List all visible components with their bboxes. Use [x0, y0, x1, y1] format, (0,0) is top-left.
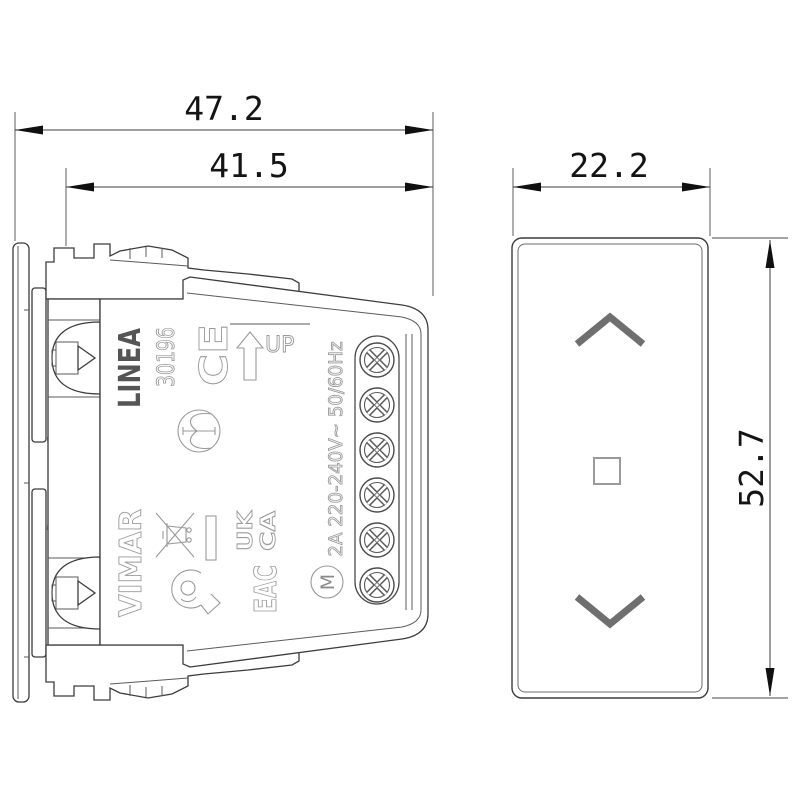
- dimension-value-front-width: 22.2: [569, 146, 648, 185]
- screw-terminal-icon: [360, 433, 394, 467]
- dimension-front-height: 52.7: [712, 238, 788, 698]
- screw-terminal-icon: [360, 478, 394, 512]
- electrical-rating-label: 2A 220-240V~ 50/60Hz: [325, 341, 347, 556]
- insulation-circle-symbol-icon: [178, 410, 220, 452]
- dimension-value-overall-depth: 47.2: [184, 89, 263, 128]
- arrowhead-down-icon: [766, 668, 775, 696]
- rocker-plate-outline: [13, 243, 29, 702]
- eac-mark-label: EAC: [249, 565, 284, 613]
- screw-terminal-icon: [360, 343, 394, 377]
- screw-terminal-icon: [360, 568, 394, 602]
- ukca-mark-label: UKCA: [233, 509, 280, 551]
- separator-bar-icon: [206, 516, 216, 560]
- claw-housing: [48, 299, 100, 645]
- arrowhead-left-icon: [513, 183, 541, 192]
- screw-terminal-icon: [360, 388, 394, 422]
- rocker-plate-profile: [13, 243, 29, 702]
- frame-lower-segment: [32, 489, 46, 657]
- arrowhead-left-icon: [15, 126, 43, 135]
- drawing-canvas: 47.2 41.5 22.2 52.7: [0, 0, 800, 800]
- dimension-value-front-height: 52.7: [732, 428, 771, 507]
- ce-mark-label: CE: [192, 324, 236, 386]
- frame-upper-segment: [32, 288, 46, 442]
- front-view: [512, 238, 708, 698]
- maker-label: VIMAR: [114, 509, 149, 617]
- module-body: LINEA 30196 CE UP VIMAR: [100, 277, 428, 667]
- dimension-mount-depth: 41.5: [66, 146, 433, 246]
- terminal-block: [355, 336, 399, 604]
- arrowhead-right-icon: [405, 126, 433, 135]
- arrowhead-left-icon: [66, 183, 94, 192]
- brand-label: LINEA: [113, 327, 148, 408]
- arrowhead-right-icon: [405, 183, 433, 192]
- dimension-front-width: 22.2: [513, 146, 710, 236]
- square-outline-icon: [594, 458, 620, 484]
- model-number-label: 30196: [152, 327, 180, 387]
- arrowhead-up-icon: [766, 240, 775, 268]
- up-label: UP: [265, 333, 294, 358]
- arrowhead-right-icon: [682, 183, 710, 192]
- screw-terminal-icon: [360, 523, 394, 557]
- motor-circle-icon: M: [311, 566, 343, 598]
- motor-symbol-label: M: [317, 574, 339, 590]
- technical-drawing-page: 47.2 41.5 22.2 52.7: [0, 0, 800, 800]
- side-view: LINEA 30196 CE UP VIMAR: [13, 243, 428, 702]
- dimension-value-mount-depth: 41.5: [209, 146, 288, 185]
